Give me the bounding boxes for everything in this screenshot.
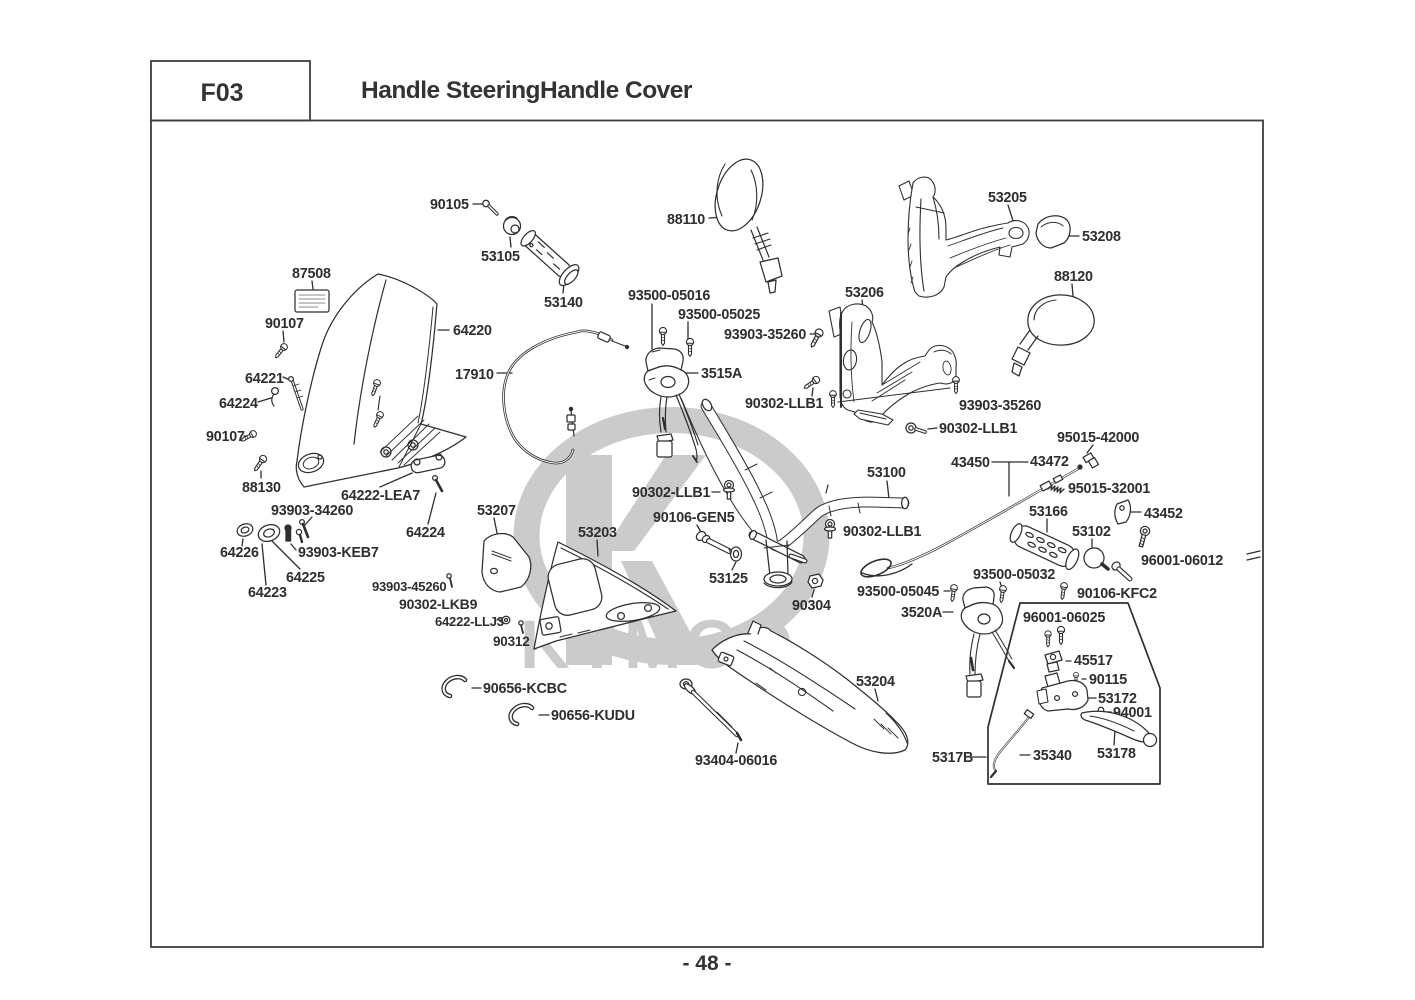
svg-text:64224: 64224 [219, 396, 258, 412]
svg-text:90312: 90312 [493, 634, 530, 649]
svg-text:64225: 64225 [286, 570, 325, 586]
svg-text:17910: 17910 [455, 367, 494, 383]
svg-text:64224: 64224 [406, 525, 445, 541]
svg-text:96001-06012: 96001-06012 [1141, 553, 1223, 569]
svg-text:90304: 90304 [792, 598, 831, 614]
svg-text:53105: 53105 [481, 249, 520, 265]
svg-text:64222-LEA7: 64222-LEA7 [341, 488, 420, 504]
svg-text:90302-LKB9: 90302-LKB9 [399, 596, 478, 612]
svg-text:53166: 53166 [1029, 504, 1068, 520]
svg-text:90302-LLB1: 90302-LLB1 [843, 524, 922, 540]
svg-text:53203: 53203 [578, 525, 617, 541]
svg-text:88120: 88120 [1054, 269, 1093, 285]
svg-text:64226: 64226 [220, 545, 259, 561]
svg-text:3515A: 3515A [701, 366, 742, 382]
svg-text:64223: 64223 [248, 585, 287, 601]
svg-text:93500-05032: 93500-05032 [973, 567, 1055, 583]
svg-text:53140: 53140 [544, 295, 583, 311]
svg-text:- 48 -: - 48 - [682, 952, 731, 975]
svg-text:93903-45260: 93903-45260 [372, 579, 446, 594]
svg-text:95015-32001: 95015-32001 [1068, 481, 1150, 497]
svg-text:90106-GEN5: 90106-GEN5 [653, 510, 735, 526]
svg-text:93903-35260: 93903-35260 [724, 327, 806, 343]
svg-text:F03: F03 [200, 79, 243, 107]
svg-text:90107: 90107 [206, 429, 245, 445]
svg-text:88130: 88130 [242, 480, 281, 496]
svg-text:53206: 53206 [845, 285, 884, 301]
svg-text:43472: 43472 [1030, 454, 1069, 470]
svg-text:93903-35260: 93903-35260 [959, 398, 1041, 414]
svg-text:93404-06016: 93404-06016 [695, 753, 777, 769]
svg-text:5317B: 5317B [932, 750, 973, 766]
svg-text:53102: 53102 [1072, 524, 1111, 540]
svg-text:93500-05045: 93500-05045 [857, 584, 939, 600]
svg-text:35340: 35340 [1033, 748, 1072, 764]
svg-text:43452: 43452 [1144, 506, 1183, 522]
svg-text:53204: 53204 [856, 674, 895, 690]
svg-text:90302-LLB1: 90302-LLB1 [745, 396, 824, 412]
svg-text:93903-KEB7: 93903-KEB7 [298, 545, 379, 561]
svg-text:53205: 53205 [988, 190, 1027, 206]
svg-text:93500-05025: 93500-05025 [678, 307, 760, 323]
svg-text:95015-42000: 95015-42000 [1057, 430, 1139, 446]
svg-text:53207: 53207 [477, 503, 516, 519]
svg-text:43450: 43450 [951, 455, 990, 471]
svg-text:53208: 53208 [1082, 229, 1121, 245]
svg-text:90107: 90107 [265, 316, 304, 332]
svg-text:53178: 53178 [1097, 746, 1136, 762]
svg-text:90656-KUDU: 90656-KUDU [551, 708, 635, 724]
svg-text:53125: 53125 [709, 571, 748, 587]
svg-text:90302-LLB1: 90302-LLB1 [632, 485, 711, 501]
svg-text:3520A: 3520A [901, 605, 942, 621]
svg-text:96001-06025: 96001-06025 [1023, 610, 1105, 626]
svg-text:64221: 64221 [245, 371, 284, 387]
svg-text:64220: 64220 [453, 323, 492, 339]
svg-text:87508: 87508 [292, 266, 331, 282]
svg-text:93500-05016: 93500-05016 [628, 288, 710, 304]
svg-text:90302-LLB1: 90302-LLB1 [939, 421, 1018, 437]
svg-text:90115: 90115 [1089, 672, 1127, 688]
svg-text:53100: 53100 [867, 465, 906, 481]
svg-text:90106-KFC2: 90106-KFC2 [1077, 586, 1157, 602]
svg-text:Handle SteeringHandle Cover: Handle SteeringHandle Cover [361, 77, 693, 104]
svg-text:45517: 45517 [1074, 653, 1113, 669]
svg-text:88110: 88110 [667, 212, 705, 228]
svg-text:64222-LLJ3: 64222-LLJ3 [435, 614, 504, 629]
svg-text:90105: 90105 [430, 197, 469, 213]
svg-text:90656-KCBC: 90656-KCBC [483, 681, 567, 697]
